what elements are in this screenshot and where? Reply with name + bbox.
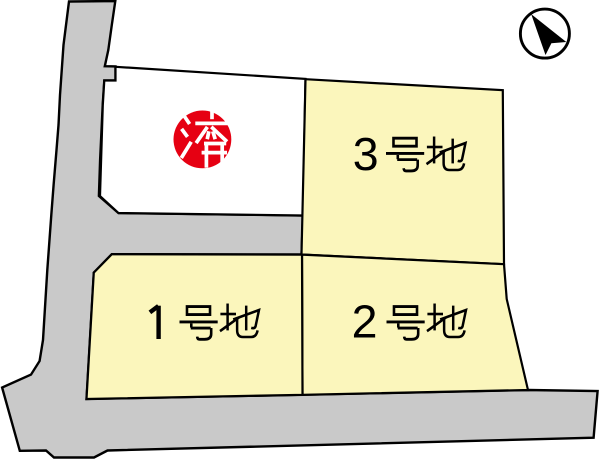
svg-text:2: 2 [352, 295, 378, 347]
svg-text:3: 3 [353, 128, 379, 180]
